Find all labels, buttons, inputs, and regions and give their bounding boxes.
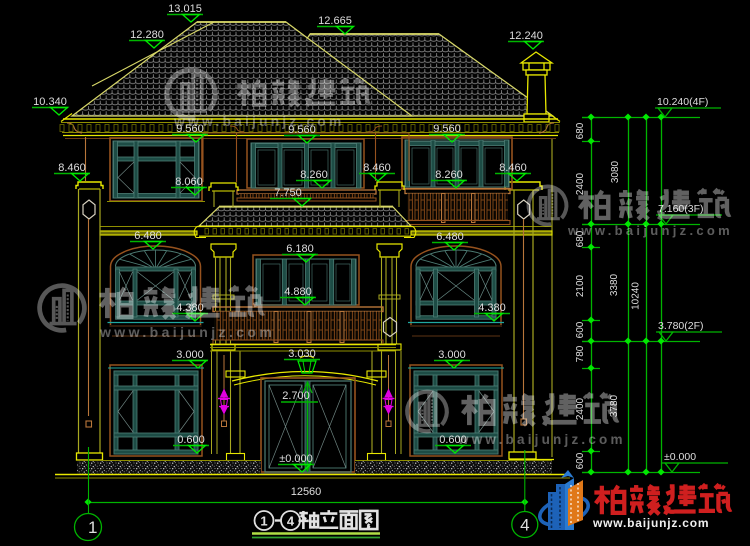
svg-text:0.600: 0.600 — [177, 434, 205, 446]
svg-text:3.000: 3.000 — [438, 349, 466, 361]
svg-text:www.baijunjz.com: www.baijunjz.com — [173, 113, 344, 129]
svg-text:1: 1 — [260, 514, 267, 529]
svg-text:3.000: 3.000 — [176, 349, 204, 361]
svg-text:8.460: 8.460 — [499, 162, 527, 174]
svg-text:www.baijunjz.com: www.baijunjz.com — [457, 432, 626, 447]
svg-text:8.260: 8.260 — [300, 169, 328, 181]
svg-text:10.340: 10.340 — [33, 96, 67, 108]
svg-text:8.460: 8.460 — [58, 162, 86, 174]
svg-text:4.880: 4.880 — [284, 286, 312, 298]
svg-text:600: 600 — [575, 452, 586, 469]
svg-text:www.baijunjz.com: www.baijunjz.com — [99, 324, 275, 340]
svg-text:8.260: 8.260 — [435, 169, 463, 181]
svg-text:8.060: 8.060 — [175, 176, 203, 188]
svg-text:4.380: 4.380 — [478, 302, 506, 314]
svg-text:600: 600 — [575, 321, 586, 338]
svg-text:10240: 10240 — [631, 282, 642, 310]
svg-text:6.480: 6.480 — [436, 231, 464, 243]
svg-text:12560: 12560 — [291, 486, 322, 498]
svg-text:680: 680 — [575, 122, 586, 139]
svg-text:3.780(2F): 3.780(2F) — [658, 320, 704, 332]
svg-text:1: 1 — [88, 518, 97, 537]
svg-text:6.480: 6.480 — [134, 230, 162, 242]
svg-text:www.baijunjz.com: www.baijunjz.com — [567, 223, 733, 238]
svg-text:4: 4 — [287, 514, 295, 529]
svg-text:2.700: 2.700 — [282, 390, 310, 402]
svg-text:780: 780 — [575, 345, 586, 362]
svg-text:±0.000: ±0.000 — [279, 453, 313, 465]
svg-text:9.560: 9.560 — [433, 123, 461, 135]
svg-text:3080: 3080 — [610, 160, 621, 183]
svg-text:www.baijunjz.com: www.baijunjz.com — [592, 516, 709, 530]
svg-text:10.240(4F): 10.240(4F) — [657, 96, 708, 108]
svg-text:2100: 2100 — [575, 274, 586, 297]
svg-text:13.015: 13.015 — [168, 3, 202, 15]
svg-text:4: 4 — [520, 516, 529, 535]
svg-text:3.030: 3.030 — [288, 348, 316, 360]
svg-text:±0.000: ±0.000 — [664, 451, 696, 463]
svg-text:6.180: 6.180 — [286, 243, 314, 255]
svg-text:12.280: 12.280 — [130, 29, 164, 41]
svg-text:3380: 3380 — [609, 273, 620, 296]
svg-text:8.460: 8.460 — [363, 162, 391, 174]
svg-text:12.240: 12.240 — [509, 30, 543, 42]
svg-text:12.665: 12.665 — [318, 15, 352, 27]
svg-text:7.750: 7.750 — [274, 187, 302, 199]
